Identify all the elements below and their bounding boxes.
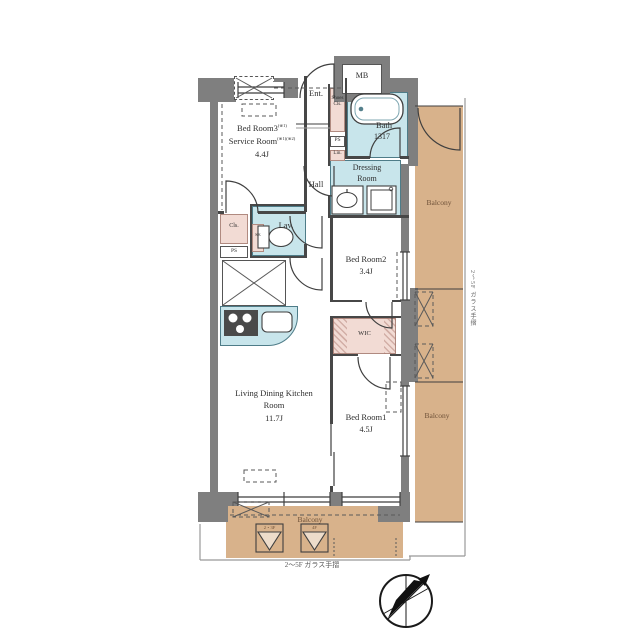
bedroom1-size-label: 4.5J — [331, 426, 401, 435]
bedroom3-note: (※1) — [278, 123, 287, 128]
bedroom3-name: Bed Room3 — [237, 123, 278, 133]
ldk-size-label: 11.7J — [218, 414, 330, 423]
glass-rail-caption-bottom: 2〜5F ガラス手摺 — [248, 562, 376, 570]
vanity-icon — [332, 186, 363, 214]
closet-label: Cls. — [220, 223, 248, 230]
bath-size-label: 1317 — [366, 133, 398, 142]
balcony-right-lower-label: Balcony — [413, 412, 461, 420]
service-room-name: Service Room — [229, 136, 277, 146]
hatch-floor-right-label: 4F — [302, 526, 327, 531]
balcony-right-upper-label: Balcony — [415, 199, 463, 207]
linen-label: Lin. — [330, 151, 345, 157]
meter-box-label: MB — [342, 72, 382, 81]
lavatory-label: Lav. — [268, 221, 304, 230]
ps-top-label: PS — [330, 137, 345, 143]
service-room-note: (※1)(※2) — [277, 136, 295, 141]
glass-rail-caption-right: 2〜5F ガラス手摺 — [461, 238, 475, 358]
wic-label: WIC — [333, 330, 396, 337]
ps-mid-label: PS — [220, 248, 248, 254]
washing-machine-icon — [367, 186, 396, 214]
bedroom3-label: Bed Room3(※1) — [212, 124, 312, 133]
bedroom2-size-label: 3.4J — [331, 268, 401, 277]
stove-icon — [224, 310, 258, 336]
sink-icon — [262, 312, 292, 332]
dressing-label-line2: Room — [338, 175, 396, 184]
ldk-label-line2: Room — [218, 401, 330, 410]
bedroom3-size-label: 4.4J — [212, 150, 312, 159]
hatch-floor-left-label: 2・3F — [257, 526, 282, 531]
balcony-bottom-label: Balcony — [280, 516, 340, 524]
service-room-label: Service Room(※1)(※2) — [206, 137, 318, 146]
hall-label: Hall — [300, 180, 332, 189]
dressing-label-line1: Dressing — [338, 164, 396, 173]
shoes-closet-label-line1: Shoes — [329, 96, 346, 102]
bedroom1-label: Bed Room1 — [331, 413, 401, 422]
ldk-label-line1: Living Dining Kitchen — [218, 389, 330, 398]
compass-icon — [380, 574, 432, 627]
shoes-closet-label: Shoes Cls. — [329, 96, 346, 107]
bedroom2-label: Bed Room2 — [331, 255, 401, 264]
bath-label: Bath — [368, 121, 400, 130]
floor-plan: MB Ent. Shoes Cls. PS Lin. Bath 1317 Dre… — [0, 0, 640, 640]
sk-label: SK — [252, 233, 264, 238]
shoes-closet-label-line2: Cls. — [329, 102, 346, 108]
